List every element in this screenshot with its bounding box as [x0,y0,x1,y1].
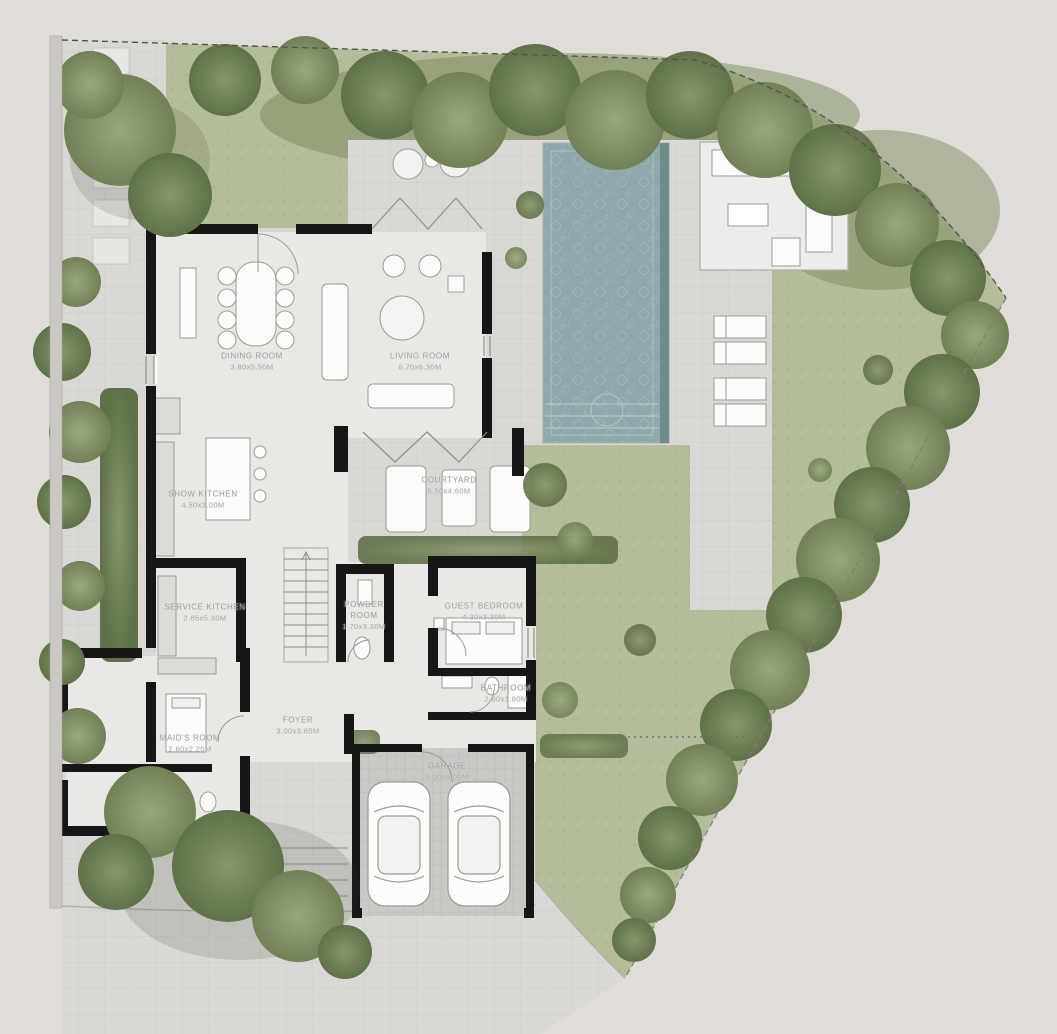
room-label-garage: GARAGE 6.00x6.00M [425,762,468,783]
room-name: BATHROOM [481,684,531,693]
room-label-bathroom: BATHROOM 2.80x1.80M [481,684,531,705]
room-dims: 2.80x1.80M [481,694,531,704]
floor-plan-canvas: DINING ROOM 3.80x5.50M LIVING ROOM 6.70x… [0,0,1057,1034]
bath-vanity [442,676,472,688]
courtyard-sofa-left [386,466,426,532]
living-rug [380,296,424,340]
living-side-table [448,276,464,292]
room-name: LIVING ROOM [390,352,450,361]
living-sofa-vertical [322,284,348,380]
room-label-service-kitchen: SERVICE KITCHEN 2.85x5.30M [164,603,245,624]
site-plan-drawing [0,0,1057,1034]
room-dims: 3.80x5.50M [221,362,283,372]
room-label-courtyard: COURTYARD 5.50x4.60M [421,476,476,497]
room-label-maids-room: MAID'S ROOM 2.60x2.20M [160,734,221,755]
room-dims: 2.85x5.30M [164,613,245,623]
room-dims: 5.50x4.60M [421,486,476,496]
service-counter-2 [158,658,216,674]
garage-side-planter [540,734,628,758]
room-label-foyer: FOYER 3.00x3.85M [276,716,319,737]
room-name: SHOW KITCHEN [168,490,237,499]
room-name: COURTYARD [421,476,476,485]
car-2 [448,782,510,906]
room-label-guest-bedroom: GUEST BEDROOM 4.30x3.30M [445,602,524,623]
dining-sideboard [180,268,196,338]
room-name: GUEST BEDROOM [445,602,524,611]
living-armchair-2 [419,255,441,277]
room-label-show-kitchen: SHOW KITCHEN 4.50x3.00M [168,490,237,511]
room-name: MAID'S ROOM [160,734,221,743]
room-dims: 3.00x3.85M [276,726,319,736]
living-armchair [383,255,405,277]
living-sofa-bottom [368,384,454,408]
room-label-living-room: LIVING ROOM 6.70x6.30M [390,352,450,373]
room-name: FOYER [283,716,314,725]
room-dims: 4.50x3.00M [168,500,237,510]
room-name: GARAGE [428,762,466,771]
room-dims: 6.00x6.00M [425,772,468,782]
room-dims: 2.60x2.20M [160,744,221,754]
maid-wc [200,792,216,812]
swimming-pool [543,143,669,443]
room-dims: 4.30x3.30M [445,612,524,622]
outdoor-coffee-table [728,204,768,226]
room-label-powder-room: POWDER ROOM 1.70x3.30M [335,600,393,632]
room-name: DINING ROOM [221,352,283,361]
room-dims: 1.70x3.30M [335,622,393,632]
left-boundary-wall [50,36,62,908]
outdoor-armchair [772,238,800,266]
room-dims: 6.70x6.30M [390,362,450,372]
room-name: SERVICE KITCHEN [164,603,245,612]
dining-table [236,262,276,346]
pool-shadow-edge [660,143,669,443]
room-name: POWDER ROOM [344,600,384,620]
car-1 [368,782,430,906]
room-label-dining-room: DINING ROOM 3.80x5.50M [221,352,283,373]
kitchen-tall-units [154,398,180,434]
